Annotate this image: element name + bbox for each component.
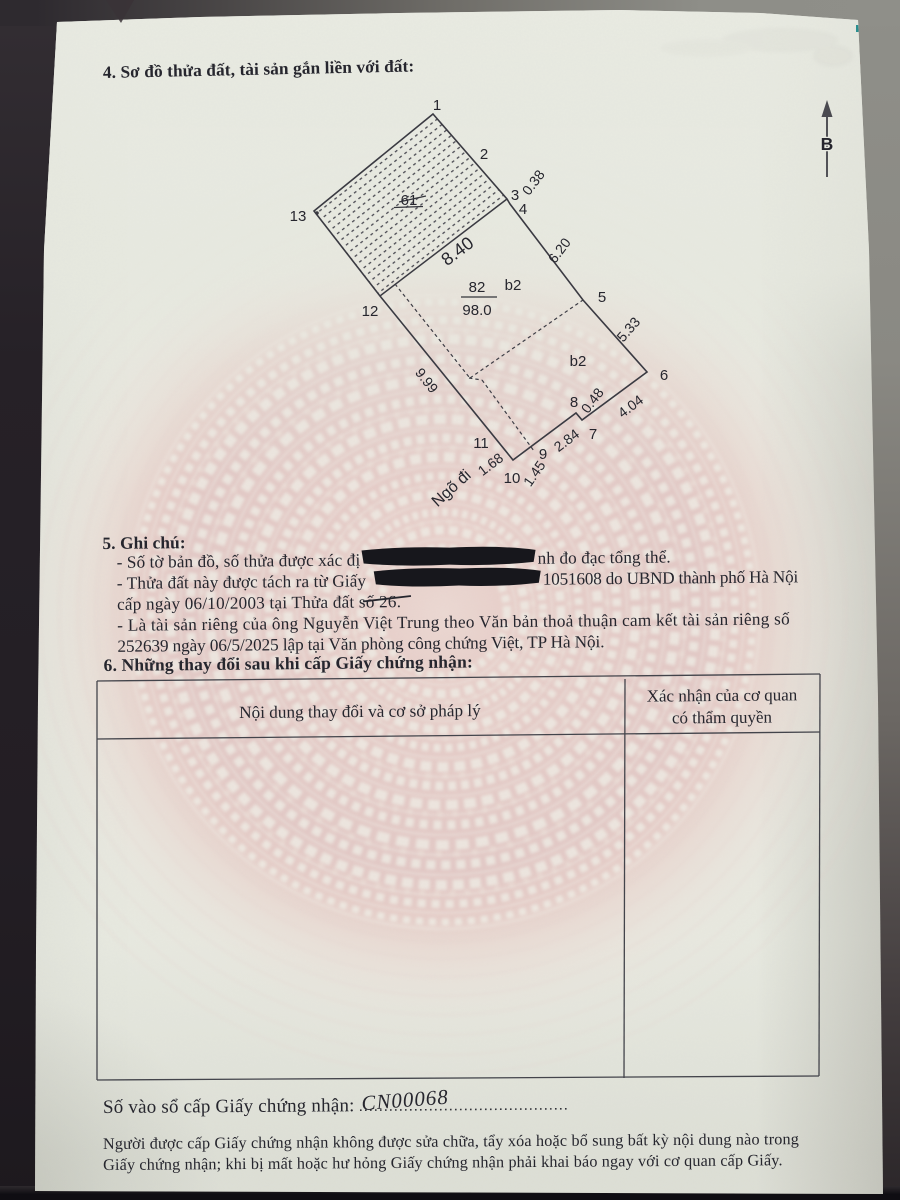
- svg-text:10: 10: [504, 470, 521, 487]
- svg-text:Số vào sổ cấp Giấy chứng nhận:: Số vào sổ cấp Giấy chứng nhận:: [103, 1095, 355, 1118]
- svg-text:1051608 do UBND thành phố Hà N: 1051608 do UBND thành phố Hà Nội: [543, 567, 799, 588]
- svg-text:có thẩm quyền: có thẩm quyền: [672, 708, 773, 728]
- svg-text:13: 13: [290, 208, 307, 225]
- svg-text:b2: b2: [570, 353, 587, 370]
- svg-text:4: 4: [519, 201, 527, 218]
- svg-text:b2: b2: [505, 277, 522, 294]
- svg-text:nh đo đạc tổng thể.: nh đo đạc tổng thể.: [538, 548, 671, 568]
- svg-text:98.0: 98.0: [462, 302, 491, 319]
- svg-text:5. Ghi chú:: 5. Ghi chú:: [102, 533, 185, 553]
- svg-text:B: B: [821, 134, 834, 154]
- svg-text:6: 6: [660, 367, 668, 384]
- svg-text:9: 9: [539, 446, 547, 463]
- svg-text:- Số tờ bản đồ, số thửa được x: - Số tờ bản đồ, số thửa được xác đị: [117, 550, 361, 571]
- svg-text:11: 11: [473, 435, 489, 452]
- svg-text:1: 1: [433, 97, 441, 114]
- svg-text:5: 5: [598, 289, 606, 306]
- svg-text:Xác nhận của cơ quan: Xác nhận của cơ quan: [647, 685, 798, 705]
- svg-text:- Thửa đất này được tách ra từ: - Thửa đất này được tách ra từ Giấy: [117, 571, 367, 592]
- svg-text:82: 82: [469, 279, 486, 296]
- svg-text:2: 2: [480, 146, 488, 163]
- svg-text:8: 8: [570, 394, 578, 411]
- svg-text:12: 12: [362, 303, 379, 320]
- svg-text:Nội dung thay đổi và cơ sở phá: Nội dung thay đổi và cơ sở pháp lý: [239, 701, 481, 722]
- svg-text:cấp ngày 06/10/2003 tại Thửa đ: cấp ngày 06/10/2003 tại Thửa đất số 26.: [117, 592, 401, 614]
- svg-text:7: 7: [589, 426, 597, 443]
- svg-text:6. Những thay đổi sau khi cấp: 6. Những thay đổi sau khi cấp Giấy chứng…: [104, 651, 473, 675]
